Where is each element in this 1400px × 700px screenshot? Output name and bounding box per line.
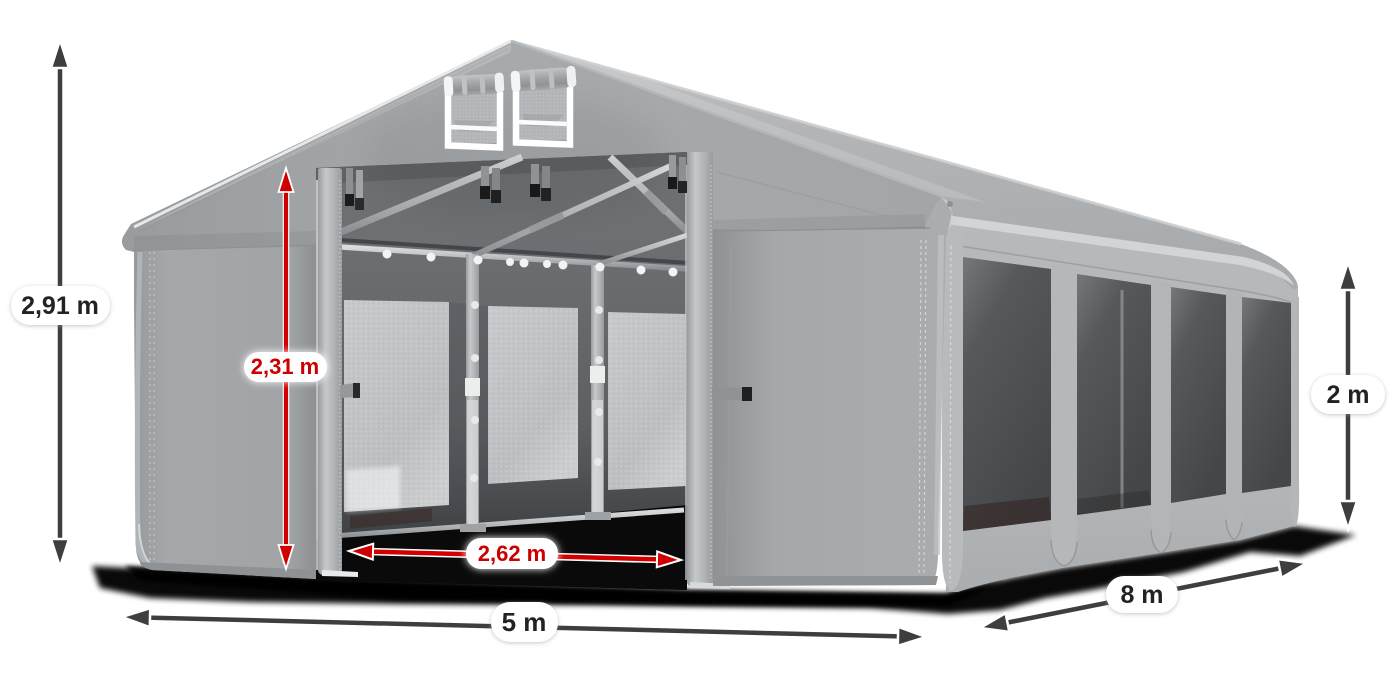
svg-text:2 m: 2 m xyxy=(1326,381,1369,409)
svg-text:2,31 m: 2,31 m xyxy=(251,354,320,379)
svg-text:5 m: 5 m xyxy=(502,607,547,637)
svg-text:2,91 m: 2,91 m xyxy=(21,292,99,320)
svg-text:2,62 m: 2,62 m xyxy=(478,541,547,566)
svg-text:8 m: 8 m xyxy=(1120,581,1163,609)
